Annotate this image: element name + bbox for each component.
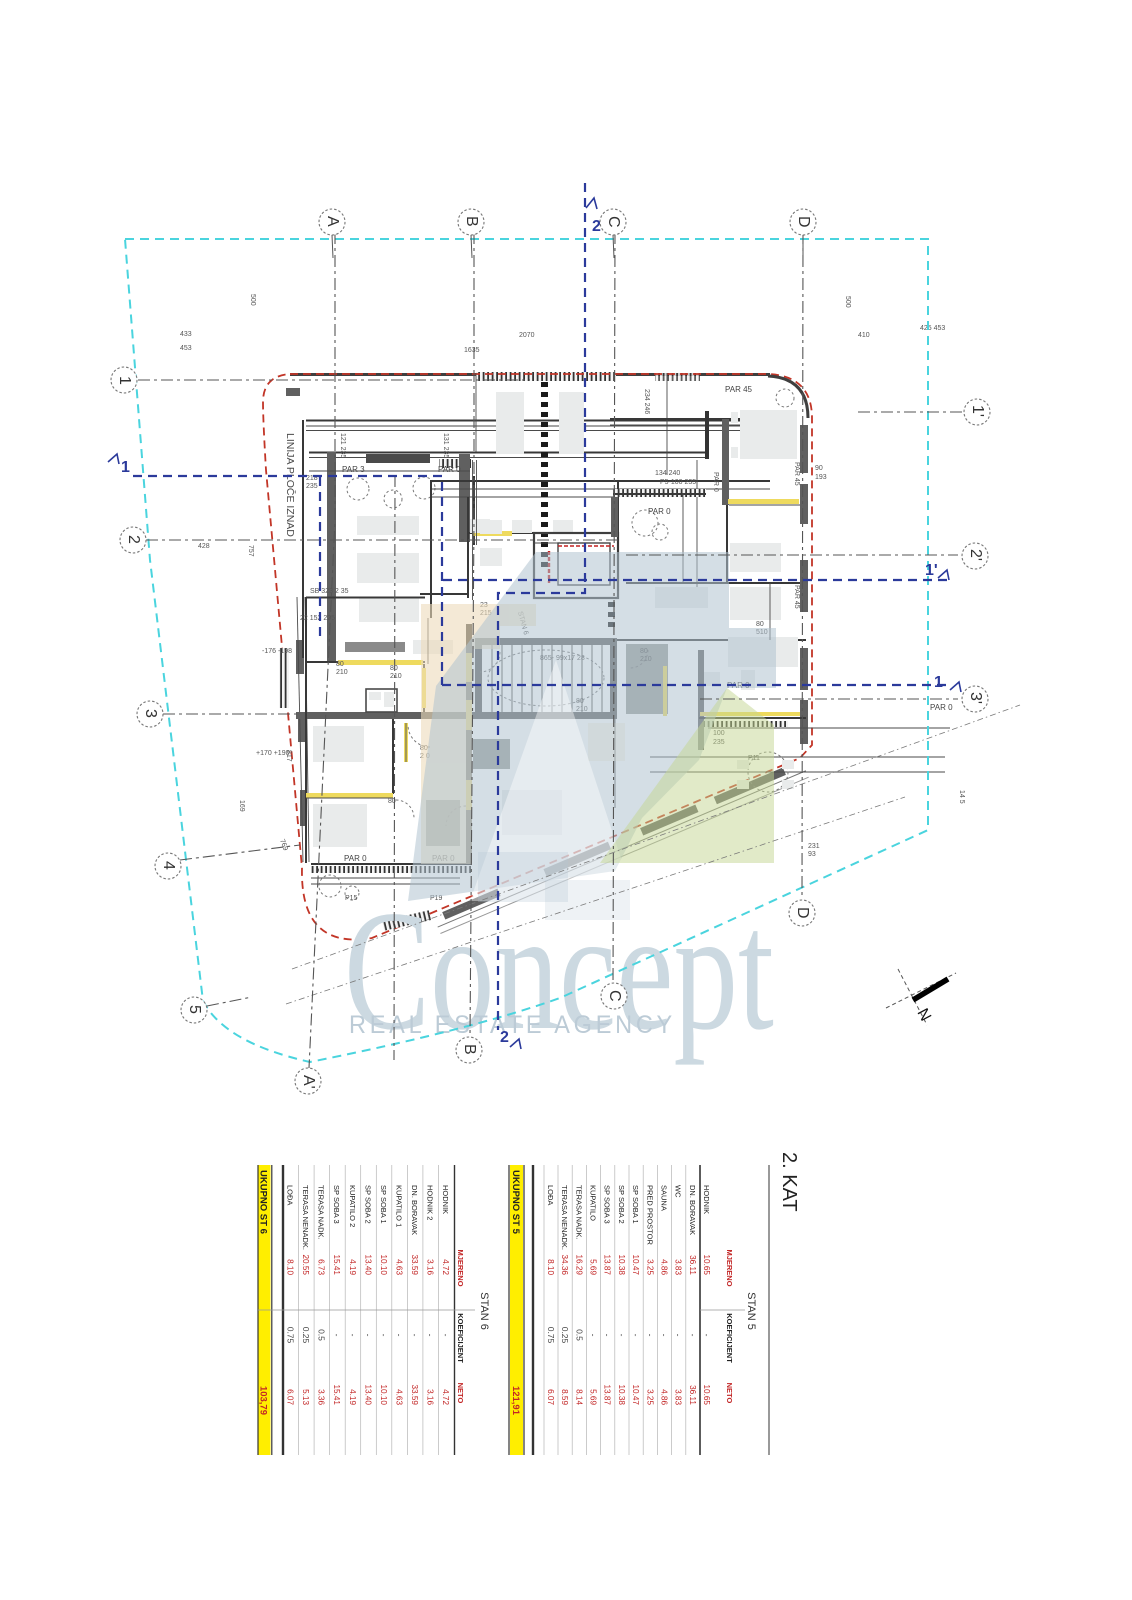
svg-text:PAR 0: PAR 0 <box>930 703 953 712</box>
svg-text:2. KAT: 2. KAT <box>778 1152 800 1212</box>
svg-text:KUPATILO 1: KUPATILO 1 <box>394 1185 403 1227</box>
svg-text:80: 80 <box>390 665 398 672</box>
svg-text:-: - <box>660 1334 670 1337</box>
svg-text:3': 3' <box>967 692 984 704</box>
svg-text:3.83: 3.83 <box>674 1389 683 1405</box>
svg-text:NETO: NETO <box>456 1383 465 1404</box>
svg-text:34.36: 34.36 <box>560 1255 569 1276</box>
svg-text:121,91: 121,91 <box>510 1386 521 1416</box>
svg-text:433: 433 <box>180 331 192 338</box>
svg-text:-: - <box>645 1334 655 1337</box>
svg-text:4.86: 4.86 <box>660 1259 669 1275</box>
svg-text:10.38: 10.38 <box>617 1255 626 1276</box>
svg-text:3: 3 <box>142 709 159 718</box>
svg-text:B: B <box>461 1044 478 1055</box>
svg-text:13.40: 13.40 <box>363 1385 372 1406</box>
svg-text:PAR 0: PAR 0 <box>648 507 671 516</box>
svg-text:C: C <box>606 990 623 1002</box>
svg-text:6.07: 6.07 <box>286 1389 295 1405</box>
svg-text:13.87: 13.87 <box>603 1385 612 1406</box>
svg-text:4.72: 4.72 <box>441 1389 450 1405</box>
svg-text:-: - <box>589 1334 599 1337</box>
svg-text:P5-100 235: P5-100 235 <box>660 479 696 486</box>
svg-text:8.59: 8.59 <box>560 1389 569 1405</box>
svg-text:UKUPNO ST 5: UKUPNO ST 5 <box>510 1170 521 1235</box>
svg-text:10.65: 10.65 <box>702 1385 711 1406</box>
svg-text:33.59: 33.59 <box>410 1385 419 1406</box>
svg-text:PAR 0: PAR 0 <box>344 854 367 863</box>
svg-text:UKUPNO ST 6: UKUPNO ST 6 <box>258 1170 269 1234</box>
svg-text:-: - <box>426 1334 436 1337</box>
svg-text:-176 -198: -176 -198 <box>262 648 292 655</box>
svg-text:-: - <box>702 1334 712 1337</box>
svg-text:0.25: 0.25 <box>301 1327 311 1344</box>
svg-text:DN. BORAVAK: DN. BORAVAK <box>688 1185 697 1235</box>
svg-text:500: 500 <box>249 294 256 306</box>
svg-text:425 453: 425 453 <box>920 325 945 332</box>
svg-text:10.10: 10.10 <box>379 1255 388 1276</box>
svg-text:121 235: 121 235 <box>339 433 346 458</box>
svg-text:1635: 1635 <box>464 347 480 354</box>
svg-text:2': 2' <box>967 549 984 561</box>
svg-text:PAR 45: PAR 45 <box>793 462 800 486</box>
svg-text:3.16: 3.16 <box>426 1389 435 1405</box>
svg-text:KOEFICIJENT: KOEFICIJENT <box>725 1313 734 1363</box>
svg-text:134 240: 134 240 <box>655 470 680 477</box>
svg-text:PAR 45: PAR 45 <box>725 385 753 394</box>
svg-text:D: D <box>795 216 812 228</box>
svg-text:103,79: 103,79 <box>258 1386 269 1415</box>
svg-text:PRED PROSTOR: PRED PROSTOR <box>645 1185 654 1245</box>
svg-text:-: - <box>348 1334 358 1337</box>
svg-text:-: - <box>441 1334 451 1337</box>
svg-text:5.13: 5.13 <box>301 1389 310 1405</box>
svg-text:4.72: 4.72 <box>441 1259 450 1275</box>
svg-text:-: - <box>410 1334 420 1337</box>
svg-text:10.65: 10.65 <box>702 1255 711 1276</box>
svg-text:16.29: 16.29 <box>574 1255 583 1276</box>
svg-text:8.10: 8.10 <box>286 1259 295 1275</box>
svg-text:HODNIK 2: HODNIK 2 <box>426 1185 435 1220</box>
svg-text:SAUNA: SAUNA <box>660 1185 669 1211</box>
svg-text:36.11: 36.11 <box>688 1255 697 1275</box>
svg-text:SP SOBA 1: SP SOBA 1 <box>631 1185 640 1224</box>
svg-text:1: 1 <box>116 376 133 385</box>
svg-text:WC: WC <box>674 1185 683 1198</box>
svg-text:15.41: 15.41 <box>332 1385 341 1406</box>
svg-text:757: 757 <box>247 545 254 557</box>
svg-text:4.19: 4.19 <box>348 1389 357 1405</box>
svg-text:10.47: 10.47 <box>631 1255 640 1276</box>
svg-text:13.40: 13.40 <box>363 1255 372 1276</box>
svg-text:PAR 45: PAR 45 <box>793 585 800 609</box>
svg-text:235: 235 <box>306 483 318 490</box>
svg-text:131 235: 131 235 <box>442 433 449 458</box>
svg-text:TERASA NENADK.: TERASA NENADK. <box>560 1185 569 1250</box>
svg-text:1: 1 <box>121 459 130 476</box>
svg-text:2070: 2070 <box>519 332 535 339</box>
svg-text:169: 169 <box>238 800 245 812</box>
svg-text:KUPATILO: KUPATILO <box>589 1185 598 1221</box>
svg-text:10.10: 10.10 <box>379 1385 388 1406</box>
svg-text:STAN 5: STAN 5 <box>745 1292 757 1330</box>
svg-text:500: 500 <box>844 296 851 308</box>
svg-text:5: 5 <box>186 1005 203 1014</box>
svg-text:4.86: 4.86 <box>660 1389 669 1405</box>
svg-text:4.63: 4.63 <box>394 1389 403 1405</box>
svg-text:0.5: 0.5 <box>574 1329 584 1341</box>
svg-text:PAR 0: PAR 0 <box>712 472 719 492</box>
svg-text:193: 193 <box>815 474 827 481</box>
svg-text:33.59: 33.59 <box>410 1255 419 1276</box>
svg-text:6.73: 6.73 <box>317 1259 326 1275</box>
svg-text:STAN 6: STAN 6 <box>478 1292 490 1330</box>
svg-text:0.75: 0.75 <box>286 1327 296 1344</box>
svg-text:15.41: 15.41 <box>332 1255 341 1276</box>
svg-text:KUPATILO 2: KUPATILO 2 <box>348 1185 357 1227</box>
svg-text:-: - <box>379 1334 389 1337</box>
svg-text:SP SOBA 2: SP SOBA 2 <box>363 1185 372 1224</box>
svg-text:SB 323 2 35: SB 323 2 35 <box>310 588 349 595</box>
svg-text:817: 817 <box>285 750 292 762</box>
svg-text:234 246: 234 246 <box>643 389 650 414</box>
svg-text:C: C <box>605 216 622 228</box>
svg-text:3.16: 3.16 <box>426 1259 435 1275</box>
svg-text:6.07: 6.07 <box>546 1389 555 1405</box>
svg-text:90: 90 <box>815 465 823 472</box>
svg-text:PAR 3: PAR 3 <box>342 465 365 474</box>
svg-text:13.87: 13.87 <box>603 1255 612 1276</box>
svg-text:5.69: 5.69 <box>589 1389 598 1405</box>
svg-text:2: 2 <box>125 535 142 544</box>
svg-text:B: B <box>463 216 480 227</box>
svg-text:1': 1' <box>969 405 986 417</box>
svg-text:REAL ESTATE AGENCY: REAL ESTATE AGENCY <box>349 1011 676 1039</box>
svg-text:-: - <box>631 1334 641 1337</box>
svg-text:8.10: 8.10 <box>546 1259 555 1275</box>
svg-text:KOEFICIJENT: KOEFICIJENT <box>456 1313 465 1363</box>
svg-text:3.25: 3.25 <box>645 1389 654 1405</box>
svg-text:8.14: 8.14 <box>574 1389 583 1405</box>
svg-text:HODNIK: HODNIK <box>702 1185 711 1214</box>
svg-text:LOĐA: LOĐA <box>286 1185 295 1205</box>
svg-text:-: - <box>674 1334 684 1337</box>
svg-text:SP SOBA 2: SP SOBA 2 <box>617 1185 626 1224</box>
svg-text:1: 1 <box>934 674 943 691</box>
svg-text:TERASA NADK.: TERASA NADK. <box>574 1185 583 1240</box>
svg-text:4.63: 4.63 <box>394 1259 403 1275</box>
svg-text:80: 80 <box>336 661 344 668</box>
svg-text:410: 410 <box>858 332 870 339</box>
svg-text:14 5: 14 5 <box>958 790 965 804</box>
svg-text:10.38: 10.38 <box>617 1385 626 1406</box>
svg-text:2: 2 <box>500 1029 509 1046</box>
svg-text:-: - <box>688 1334 698 1337</box>
svg-text:PAR 0: PAR 0 <box>438 465 461 474</box>
svg-text:-: - <box>394 1334 404 1337</box>
svg-text:1': 1' <box>925 562 938 579</box>
svg-text:SP SOBA 3: SP SOBA 3 <box>332 1185 341 1224</box>
svg-text:0.75: 0.75 <box>546 1327 556 1344</box>
svg-text:0.25: 0.25 <box>560 1327 570 1344</box>
svg-text:TERASA NADK.: TERASA NADK. <box>317 1185 326 1240</box>
svg-text:210: 210 <box>336 669 348 676</box>
svg-text:428: 428 <box>198 543 210 550</box>
svg-text:NETO: NETO <box>725 1383 734 1404</box>
svg-text:-: - <box>332 1334 342 1337</box>
svg-text:-: - <box>363 1334 373 1337</box>
svg-text:A: A <box>324 216 341 227</box>
svg-text:4: 4 <box>160 861 177 870</box>
svg-text:3.25: 3.25 <box>645 1259 654 1275</box>
svg-text:-: - <box>617 1334 627 1337</box>
svg-text:3.83: 3.83 <box>674 1259 683 1275</box>
svg-text:93: 93 <box>808 851 816 858</box>
svg-text:MJERENO: MJERENO <box>456 1249 465 1286</box>
svg-text:80: 80 <box>756 621 764 628</box>
svg-text:HODNIK: HODNIK <box>441 1185 450 1214</box>
svg-text:+170 +190: +170 +190 <box>256 750 290 757</box>
svg-text:DN. BORAVAK: DN. BORAVAK <box>410 1185 419 1235</box>
svg-text:A': A' <box>300 1075 317 1089</box>
svg-text:SP SOBA 1: SP SOBA 1 <box>379 1185 388 1224</box>
svg-text:36.11: 36.11 <box>688 1385 697 1405</box>
svg-text:210: 210 <box>390 673 402 680</box>
svg-text:LOĐA: LOĐA <box>546 1185 555 1205</box>
svg-text:LINIJA PLOČE IZNAD: LINIJA PLOČE IZNAD <box>284 433 297 537</box>
svg-text:231: 231 <box>808 843 820 850</box>
svg-text:5.69: 5.69 <box>589 1259 598 1275</box>
svg-text:SP SOBA 3: SP SOBA 3 <box>603 1185 612 1224</box>
svg-text:10.47: 10.47 <box>631 1385 640 1406</box>
svg-text:TERASA NENADK.: TERASA NENADK. <box>301 1185 310 1250</box>
svg-text:0.5: 0.5 <box>317 1329 327 1341</box>
svg-text:453: 453 <box>180 345 192 352</box>
svg-text:3.36: 3.36 <box>317 1389 326 1405</box>
svg-text:4.19: 4.19 <box>348 1259 357 1275</box>
svg-text:20.55: 20.55 <box>301 1255 310 1276</box>
svg-text:D: D <box>794 907 811 919</box>
svg-text:MJERENO: MJERENO <box>725 1249 734 1286</box>
svg-text:-: - <box>603 1334 613 1337</box>
